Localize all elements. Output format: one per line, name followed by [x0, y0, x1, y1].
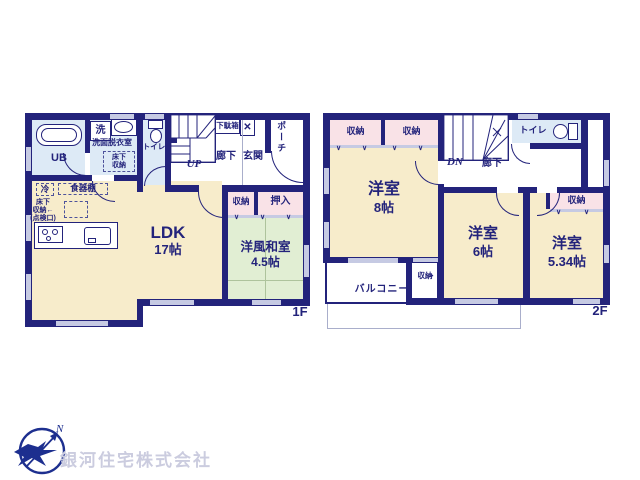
- stove-burner: [46, 236, 51, 241]
- label-toilet-1f: トイレ: [141, 143, 167, 151]
- label-bedroom8: 洋室: [340, 181, 428, 199]
- underfloor-hatch-box: [64, 201, 88, 218]
- window: [324, 222, 329, 248]
- label-toilet-2f: トイレ: [512, 125, 554, 135]
- underfloor-line3: (点検口): [30, 215, 56, 222]
- underfloor-storage-label: 床下 収納← (点検口): [24, 199, 62, 222]
- stove-burner: [52, 229, 58, 235]
- label-corridor-1f: 廊下: [210, 151, 242, 162]
- wall: [530, 143, 588, 149]
- window: [252, 300, 281, 305]
- stove-burner: [42, 229, 48, 235]
- shoe-cabinet-label: 下駄箱: [216, 122, 239, 130]
- wall: [165, 185, 199, 192]
- label-bedroom5: 洋室: [532, 236, 602, 253]
- wall: [265, 113, 271, 153]
- wall: [438, 187, 497, 193]
- washer-label: 洗: [96, 125, 106, 136]
- wall: [25, 175, 92, 181]
- wall: [557, 187, 610, 193]
- cupboard-label: 食器棚: [70, 184, 96, 194]
- toilet-tank-2f: [568, 123, 578, 140]
- window: [145, 114, 164, 119]
- label-washroom: 洗面脱衣室: [86, 139, 138, 148]
- floorplan-page: 洗 冷 食器棚 床下 収納← (点検口) 床下 収納: [0, 0, 640, 480]
- label-bedroom6-size: 6帖: [448, 245, 518, 260]
- label-closet5: 収納: [550, 195, 603, 205]
- bathtub-inner: [41, 128, 77, 142]
- wall: [406, 257, 412, 305]
- wall: [114, 175, 137, 181]
- label-bedroom8-size: 8帖: [340, 201, 428, 216]
- fridge-label: 冷: [41, 185, 50, 195]
- underfloor-line1: 床下: [112, 154, 126, 161]
- shoe-cabinet: 下駄箱: [215, 119, 240, 134]
- window: [604, 160, 609, 186]
- chevron-down-icon: ∨: [418, 145, 423, 152]
- cross-icon: ✕: [243, 122, 251, 133]
- window: [455, 299, 498, 304]
- sliding-door-front: [228, 215, 303, 218]
- washbasin-bowl: [114, 121, 133, 133]
- sliding-door-front: [413, 258, 438, 262]
- cupboard-box: 食器棚: [58, 183, 108, 195]
- window: [518, 114, 538, 119]
- window: [324, 168, 329, 194]
- chevron-down-icon: ∨: [392, 145, 397, 152]
- wall: [303, 113, 310, 306]
- wall: [137, 113, 143, 192]
- label-oshiire: 押入: [258, 196, 303, 207]
- floor-label-2f: 2F: [588, 304, 612, 319]
- compass-n-label: N: [55, 423, 64, 435]
- chevron-down-icon: ∨: [584, 209, 589, 216]
- label-porch: ポーチ: [276, 117, 286, 157]
- room-ldk-lower: [32, 299, 137, 320]
- chevron-down-icon: ∨: [286, 214, 291, 221]
- label-ldk-size: 17帖: [128, 243, 208, 258]
- window: [150, 300, 194, 305]
- chevron-down-icon: ∨: [336, 145, 341, 152]
- underfloor-storage-washroom: 床下 収納: [103, 151, 135, 172]
- label-tatami-size: 4.5帖: [228, 256, 303, 269]
- toilet-bowl-1f: [150, 129, 162, 143]
- arrow-icon: ←: [47, 207, 54, 214]
- fridge-box: 冷: [36, 183, 54, 196]
- wall: [581, 113, 588, 187]
- label-bedroom6: 洋室: [448, 226, 518, 243]
- company-name: 銀河住宅株式会社: [60, 446, 212, 471]
- window: [604, 245, 609, 263]
- chevron-down-icon: ∨: [260, 214, 265, 221]
- label-balcony: バルコニー: [333, 284, 431, 295]
- floor-label-1f: 1F: [288, 305, 312, 320]
- window: [26, 147, 31, 171]
- chevron-down-icon: ∨: [362, 145, 367, 152]
- stairs-2f: [443, 114, 509, 161]
- label-storage-small: 収納: [412, 272, 438, 280]
- stove: [38, 226, 63, 243]
- lower-roof-outline: [327, 304, 521, 329]
- window: [304, 245, 309, 277]
- wall: [603, 113, 610, 305]
- toilet-tank-1f: [148, 120, 163, 129]
- underfloor-line2: 収納: [33, 207, 47, 214]
- label-closet8-right: 収納: [385, 126, 438, 136]
- underfloor-line2: 収納: [112, 162, 126, 169]
- faucet: [88, 238, 96, 243]
- underfloor-washroom-label: 床下 収納: [112, 154, 126, 170]
- window: [56, 321, 108, 326]
- label-corridor-2f: 廊下: [470, 158, 514, 169]
- label-entrance: 玄関: [240, 151, 266, 162]
- label-ldk: LDK: [128, 223, 208, 242]
- window: [26, 274, 31, 300]
- chevron-down-icon: ∨: [234, 214, 239, 221]
- label-stairs-dn: DN: [443, 156, 467, 168]
- label-bedroom5-size: 5.34帖: [530, 255, 604, 270]
- wall: [222, 185, 310, 192]
- wall: [137, 185, 143, 192]
- label-tatami-room: 洋風和室: [228, 240, 303, 254]
- underfloor-line1: 床下: [36, 199, 50, 206]
- tatami-line: [228, 280, 303, 281]
- balcony-sliding-door: [348, 258, 398, 263]
- toilet-bowl-2f: [553, 124, 568, 139]
- chevron-down-icon: ∨: [556, 209, 561, 216]
- label-ub: UB: [38, 152, 80, 164]
- door-leaf: [222, 192, 224, 217]
- label-closet8-left: 収納: [330, 126, 381, 136]
- wall: [523, 187, 530, 298]
- label-stairs-up: UP: [182, 158, 206, 170]
- label-storage-1f: 収納: [228, 197, 254, 207]
- wall: [438, 184, 444, 304]
